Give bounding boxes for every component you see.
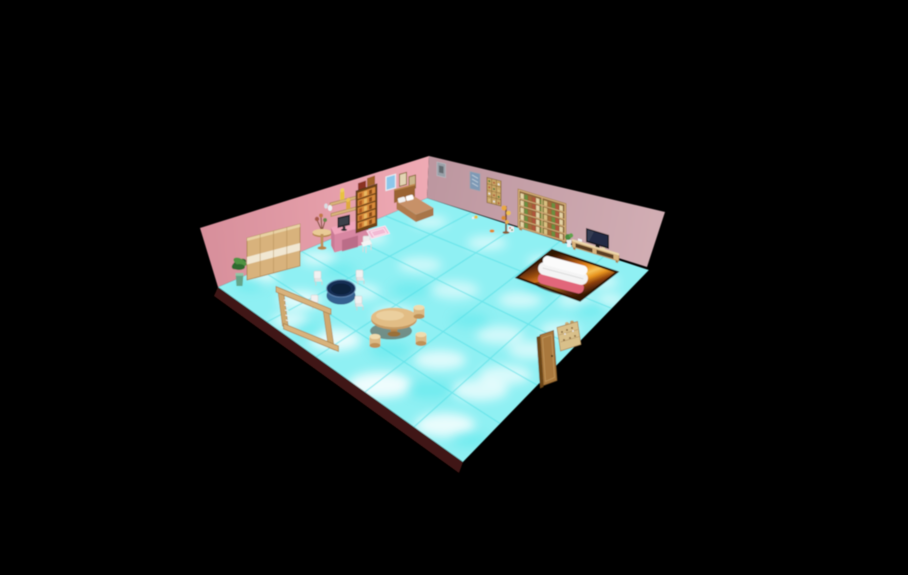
display-cabinet [487, 178, 501, 206]
blue-table [327, 280, 356, 305]
stool-2 [414, 305, 425, 319]
door [537, 331, 558, 389]
blue-picture [470, 172, 480, 191]
picture-frame-1 [399, 172, 407, 187]
stool-3 [416, 332, 427, 346]
stool-1 [370, 334, 381, 348]
room-scene [0, 0, 908, 575]
gray-picture [437, 162, 446, 178]
render-viewport[interactable] [0, 0, 908, 575]
blue-poster [386, 174, 396, 190]
